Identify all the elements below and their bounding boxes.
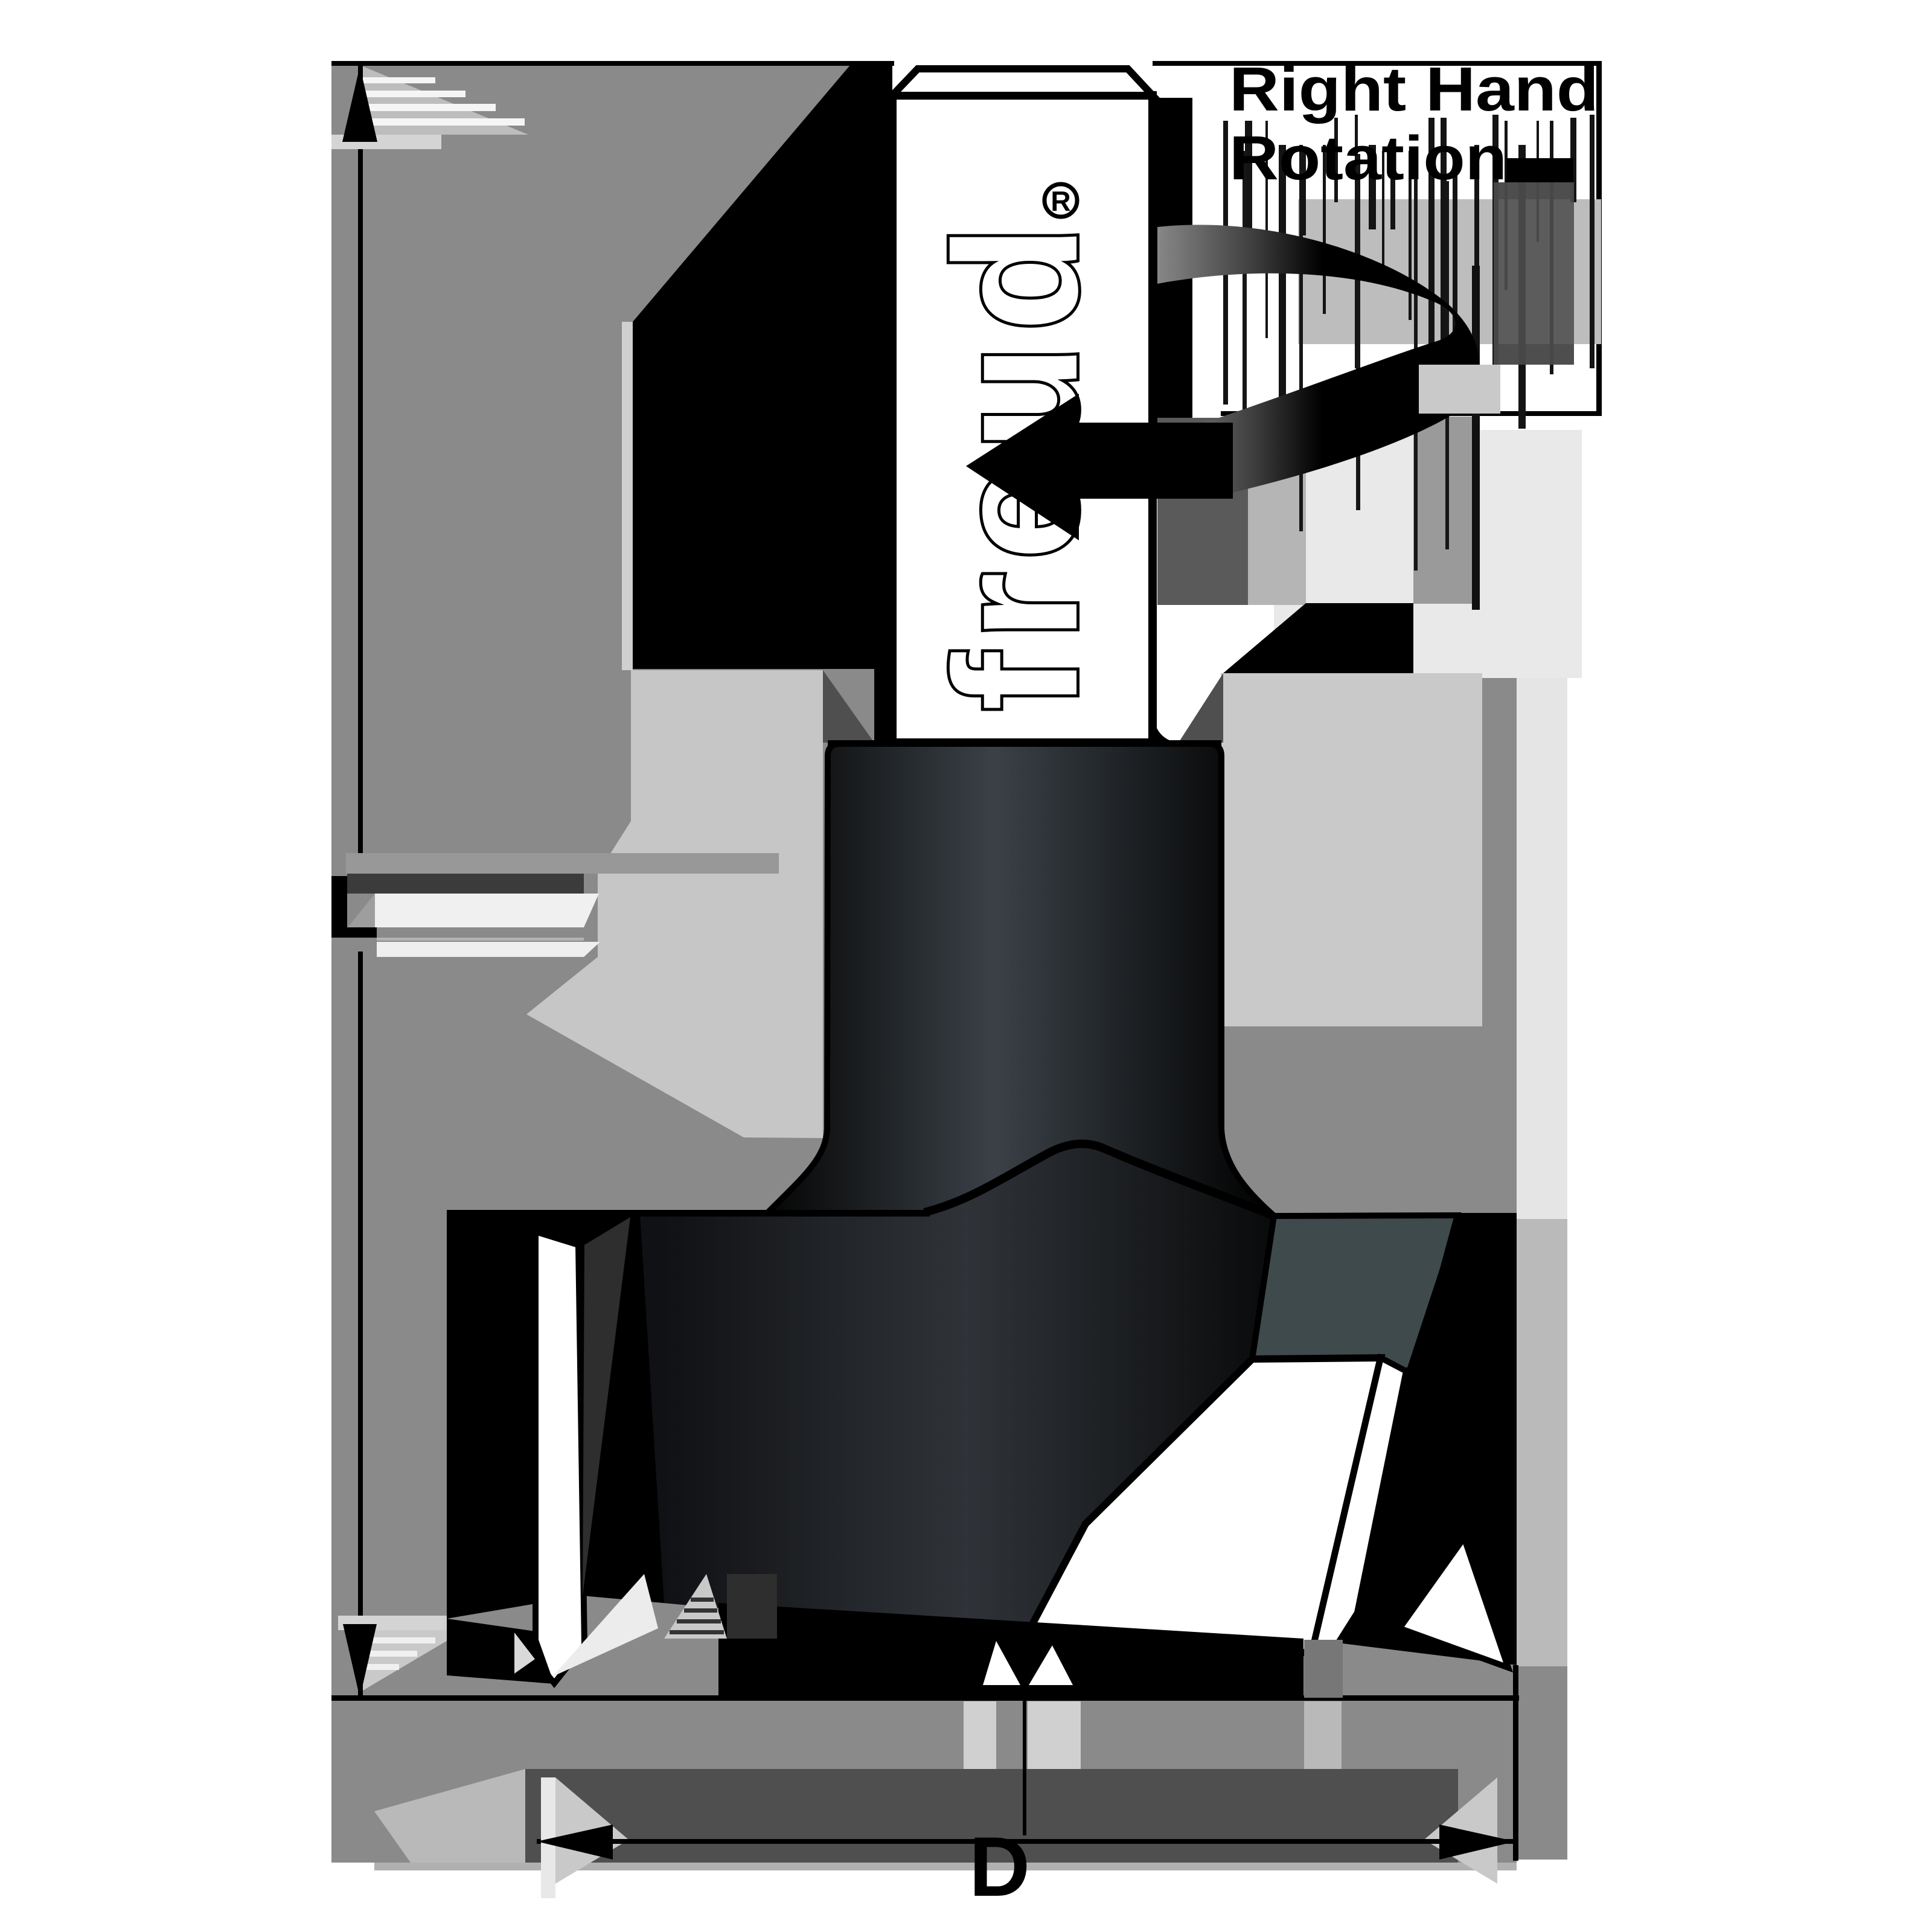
svg-text:Rotation: Rotation	[1229, 123, 1507, 193]
svg-text:R: R	[1051, 185, 1070, 217]
svg-text:Right Hand: Right Hand	[1229, 54, 1599, 124]
svg-text:D: D	[969, 1819, 1030, 1914]
